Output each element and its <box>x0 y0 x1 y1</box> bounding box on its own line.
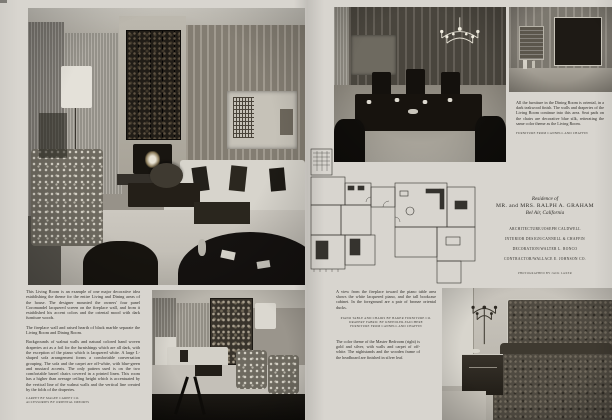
view-caption-body: A view from the fireplace toward the pia… <box>336 289 436 310</box>
scan-artifact <box>0 0 7 3</box>
bottle <box>523 60 527 69</box>
playing-cards <box>256 260 270 269</box>
photo-wall-detail <box>509 7 612 92</box>
place-setting <box>393 98 401 102</box>
dark-pillow <box>269 167 286 191</box>
bar-artwork <box>280 109 292 135</box>
dark-side-chair <box>39 113 67 157</box>
bottle <box>532 61 535 68</box>
dark-pillow <box>180 350 189 361</box>
photo-dining-room <box>334 7 506 162</box>
cane-chair-back <box>83 241 158 285</box>
chandelier <box>434 15 486 58</box>
article-paragraph-1: This Living Room is an example of one ma… <box>26 289 140 321</box>
wine-glass <box>198 239 207 256</box>
credit-interior-design: INTERIOR DESIGN/CANNELL & CHAFFIN <box>478 234 612 244</box>
place-setting <box>446 98 454 102</box>
photo-living-room-view <box>152 290 305 420</box>
bar-pass-through <box>227 91 296 149</box>
off-white-carpet <box>442 391 486 420</box>
coromandel-screen <box>126 30 181 140</box>
article-text: This Living Room is an example of one ma… <box>26 289 140 405</box>
wall-art <box>351 35 396 75</box>
side-table <box>194 202 249 224</box>
article-paragraph-2: The fireplace wall and raised hearth of … <box>26 325 140 336</box>
dining-caption-credit: Furniture from Cannell and Chaffin <box>516 131 604 135</box>
counter-ledge <box>509 68 612 92</box>
playing-cards <box>220 249 236 260</box>
article-paragraph-3: Backgrounds of walnut walls and natural … <box>26 339 140 392</box>
floor-plan-drawing <box>311 149 475 283</box>
dark-table <box>195 365 223 375</box>
credit-photographer: PHOTOGRAPHED BY JACK LAXER <box>478 271 612 275</box>
dining-table <box>355 94 482 131</box>
framed-artwork <box>554 17 601 66</box>
headboard <box>507 299 612 350</box>
residence-name: MR. and MRS. RALPH A. GRAHAM <box>478 203 612 210</box>
view-caption-credit-3: Furniture from Cannell and Chaffin <box>336 324 436 328</box>
credit-contractor: CONTRACTOR/WALLACE E. JOHNSON CO. <box>478 254 612 264</box>
lamp-shade <box>255 303 276 329</box>
bar-shelves <box>233 97 254 138</box>
place-setting <box>365 100 373 104</box>
residence-block: Residence of MR. and MRS. RALPH A. GRAHA… <box>478 196 612 275</box>
bedroom-caption: The color theme of the Master Bedroom (r… <box>336 339 420 360</box>
floral-armchair <box>31 149 103 246</box>
floor-plan <box>308 143 480 287</box>
dining-caption: All the furniture in the Dining Room is … <box>516 100 604 135</box>
magazine-spread: This Living Room is an example of one ma… <box>0 0 612 420</box>
candelabra-lamp <box>469 295 500 350</box>
credit-architecture: ARCHITECTURE/JOSEPH CALDWELL <box>478 224 612 234</box>
floral-barrel-chair <box>268 355 299 394</box>
article-credit-2: Accessories by Oriental Imports <box>26 400 140 404</box>
view-caption: A view from the fireplace toward the pia… <box>336 289 436 328</box>
bar-niche <box>519 26 544 60</box>
residence-location: Bel Air, California <box>478 210 612 217</box>
table-plant <box>150 163 183 188</box>
nightstand <box>462 354 503 395</box>
credit-decoration: DECORATION/WALTER L. RONCO <box>478 244 612 254</box>
dark-pillow <box>229 165 248 192</box>
photo-living-room-main <box>28 8 305 285</box>
floral-barrel-chair <box>236 350 267 389</box>
place-setting <box>421 100 429 104</box>
photo-master-bedroom <box>442 288 612 420</box>
floor-lamp-shade <box>61 66 91 108</box>
centerpiece <box>408 109 418 114</box>
bedspread <box>493 354 612 420</box>
dining-caption-body: All the furniture in the Dining Room is … <box>516 100 604 126</box>
drawer-line <box>469 367 498 368</box>
